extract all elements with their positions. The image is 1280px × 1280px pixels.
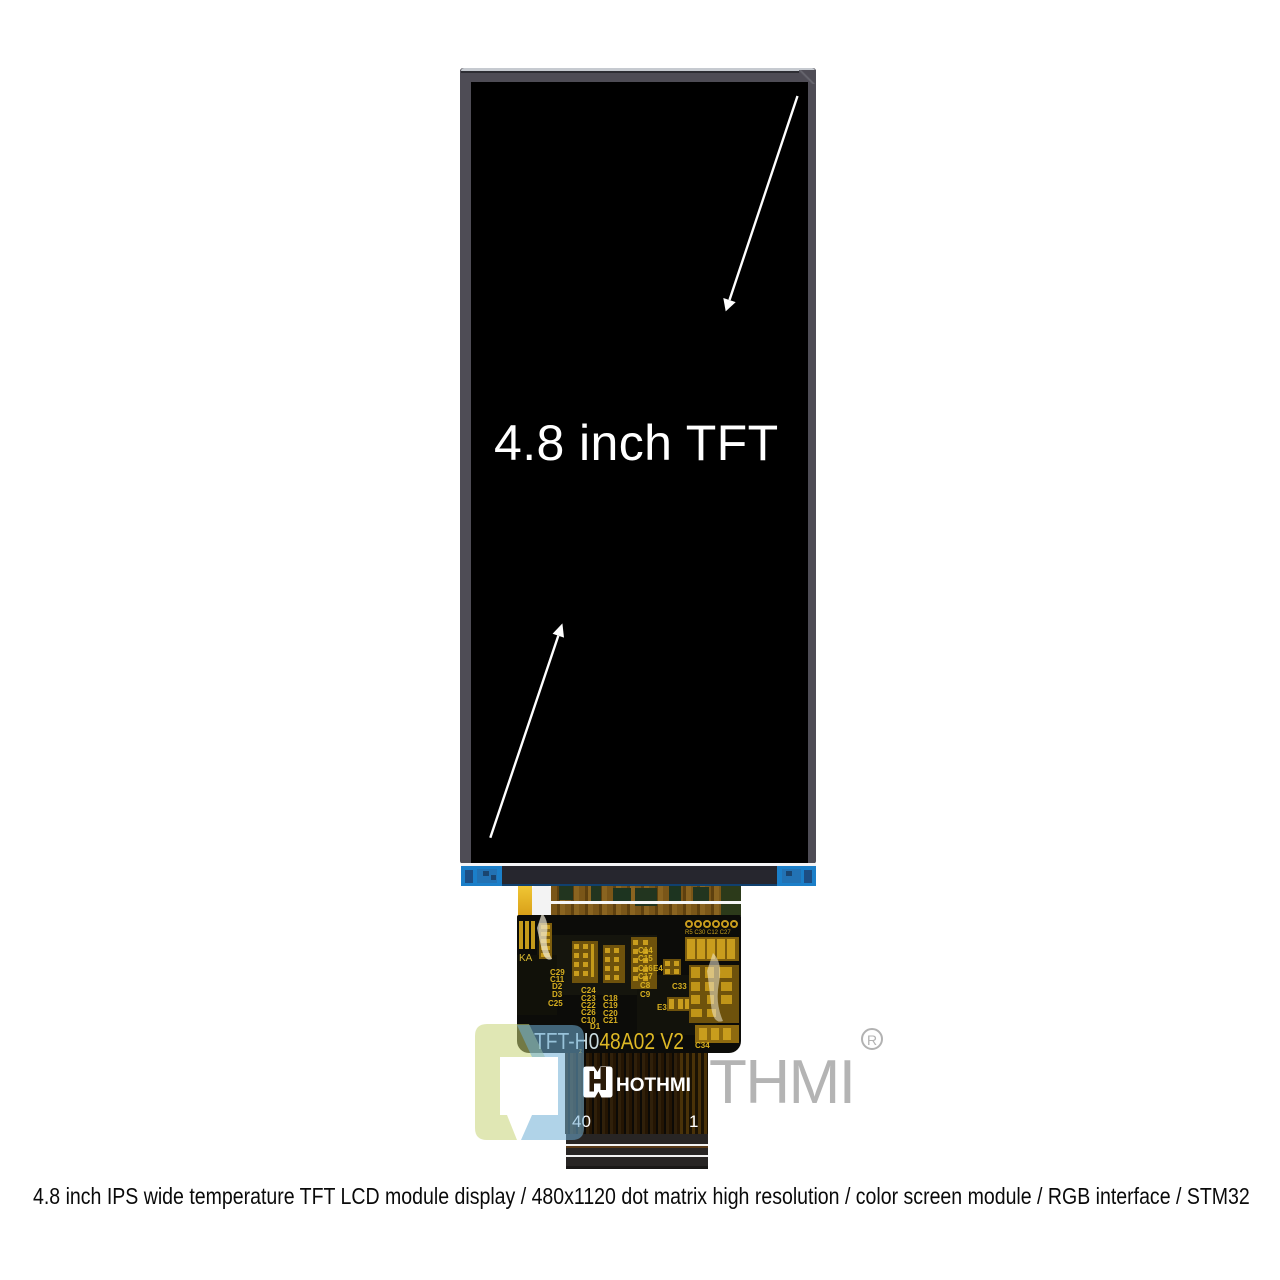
svg-text:R: R bbox=[867, 1032, 877, 1048]
svg-text:THMI: THMI bbox=[709, 1048, 855, 1117]
